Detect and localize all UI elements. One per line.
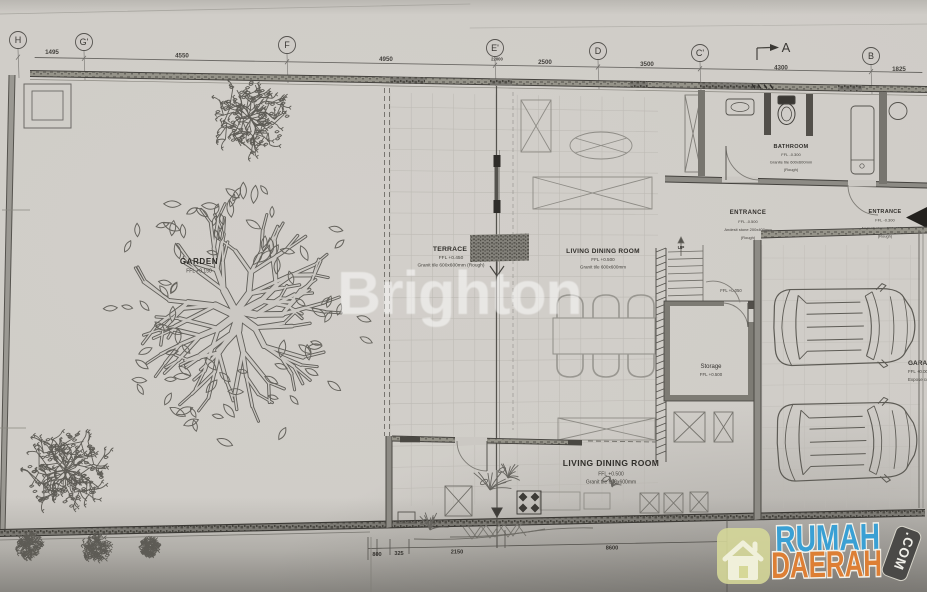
svg-text:FFL +0.150: FFL +0.150 (186, 269, 212, 275)
svg-text:1825: 1825 (892, 66, 906, 73)
svg-text:FFL -0.500: FFL -0.500 (738, 219, 758, 224)
svg-text:LIVING DINING ROOM: LIVING DINING ROOM (566, 248, 640, 255)
svg-text:F: F (284, 40, 290, 50)
svg-text:(Rough): (Rough) (784, 167, 799, 172)
svg-text:22000: 22000 (491, 57, 503, 62)
svg-text:2500: 2500 (538, 59, 552, 66)
svg-text:3500: 3500 (640, 61, 654, 68)
svg-text:G': G' (80, 37, 89, 47)
svg-text:GARAGE: GARAGE (908, 360, 927, 367)
svg-text:4550: 4550 (175, 53, 189, 60)
svg-text:FFL -0.300: FFL -0.300 (781, 152, 801, 157)
svg-text:1495: 1495 (45, 49, 59, 56)
svg-text:Expose concrete: Expose concrete (908, 377, 927, 382)
svg-text:TERRACE: TERRACE (433, 246, 468, 253)
svg-text:8600: 8600 (606, 546, 618, 552)
svg-text:Storage: Storage (700, 364, 722, 370)
svg-text:FFL +0.500: FFL +0.500 (598, 472, 624, 478)
svg-text:FFL +0.500: FFL +0.500 (700, 372, 723, 377)
svg-text:H: H (15, 35, 22, 45)
svg-text:C': C' (696, 48, 704, 58)
svg-text:4300: 4300 (774, 65, 788, 72)
svg-text:GARDEN: GARDEN (180, 257, 218, 266)
svg-text:FFL +0.000: FFL +0.000 (908, 369, 927, 374)
svg-text:4950: 4950 (379, 56, 393, 63)
svg-text:325: 325 (394, 551, 403, 557)
svg-text:B: B (868, 51, 874, 61)
svg-text:2150: 2150 (451, 550, 463, 556)
svg-text:ENTRANCE: ENTRANCE (869, 209, 902, 215)
svg-text:BATHROOM: BATHROOM (774, 144, 809, 150)
svg-text:FFL -0.300: FFL -0.300 (875, 218, 895, 223)
svg-text:Granite tile 600x600mm: Granite tile 600x600mm (770, 160, 813, 165)
svg-text:A: A (782, 40, 791, 55)
svg-text:D: D (595, 46, 602, 56)
svg-text:FFL +0.050: FFL +0.050 (720, 288, 742, 293)
svg-text:(Rough): (Rough) (741, 235, 756, 240)
svg-text:ENTRANCE: ENTRANCE (730, 210, 767, 216)
svg-text:800: 800 (372, 552, 381, 558)
svg-text:UP: UP (678, 245, 685, 251)
svg-text:LIVING DINING ROOM: LIVING DINING ROOM (563, 458, 659, 468)
svg-text:E': E' (491, 43, 499, 53)
